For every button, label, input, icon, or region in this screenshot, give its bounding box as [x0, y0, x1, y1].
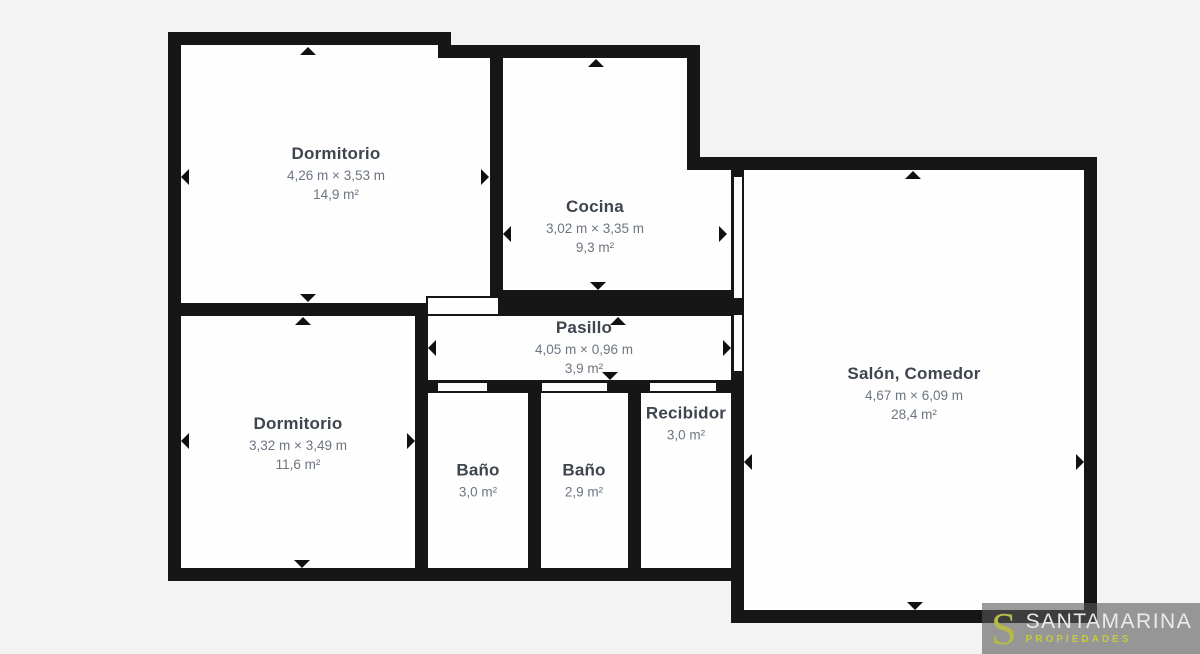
- room-name: Dormitorio: [287, 144, 385, 164]
- measure-arrow-right-icon: [723, 340, 731, 356]
- label-bano-2: Baño 2,9 m²: [562, 461, 605, 500]
- room-name: Recibidor: [646, 404, 726, 424]
- door-dormitorio1-pasillo: [426, 296, 500, 316]
- room-cocina: [503, 58, 687, 290]
- label-dormitorio-2: Dormitorio 3,32 m × 3,49 m 11,6 m²: [249, 414, 347, 472]
- wall-bano1-bano2: [528, 380, 541, 581]
- measure-arrow-down-icon: [907, 602, 923, 610]
- room-dimensions: 4,67 m × 6,09 m: [847, 388, 980, 403]
- measure-arrow-down-icon: [294, 560, 310, 568]
- wall-salon-top: [687, 157, 1097, 170]
- door-pasillo-bano2: [542, 383, 607, 392]
- room-area: 14,9 m²: [287, 187, 385, 202]
- measure-arrow-up-icon: [905, 171, 921, 179]
- room-area: 9,3 m²: [546, 240, 644, 255]
- room-area: 11,6 m²: [249, 457, 347, 472]
- room-area: 3,9 m²: [535, 361, 633, 376]
- label-salon-comedor: Salón, Comedor 4,67 m × 6,09 m 28,4 m²: [847, 364, 980, 422]
- measure-arrow-up-icon: [300, 47, 316, 55]
- door-pasillo-salon: [734, 315, 742, 371]
- measure-arrow-left-icon: [503, 226, 511, 242]
- logo-mark-icon: S: [991, 610, 1017, 648]
- agency-logo: S SANTAMARINA PROPIEDADES: [982, 603, 1200, 654]
- measure-arrow-down-icon: [590, 282, 606, 290]
- label-bano-1: Baño 3,0 m²: [456, 461, 499, 500]
- measure-arrow-right-icon: [1076, 454, 1084, 470]
- room-dimensions: 4,26 m × 3,53 m: [287, 168, 385, 183]
- room-name: Cocina: [546, 197, 644, 217]
- room-name: Salón, Comedor: [847, 364, 980, 384]
- room-dimensions: 4,05 m × 0,96 m: [535, 342, 633, 357]
- door-cocina-salon: [734, 177, 742, 298]
- logo-tagline-text: PROPIEDADES: [1026, 634, 1193, 646]
- room-dimensions: 3,32 m × 3,49 m: [249, 438, 347, 453]
- measure-arrow-right-icon: [481, 169, 489, 185]
- measure-arrow-left-icon: [181, 433, 189, 449]
- room-area: 2,9 m²: [562, 485, 605, 500]
- wall-cocina-right: [687, 45, 700, 170]
- room-area: 3,0 m²: [456, 485, 499, 500]
- label-dormitorio-1: Dormitorio 4,26 m × 3,53 m 14,9 m²: [287, 144, 385, 202]
- label-recibidor: Recibidor 3,0 m²: [646, 404, 726, 443]
- wall-cocina-bottom: [490, 290, 744, 303]
- measure-arrow-left-icon: [428, 340, 436, 356]
- measure-arrow-left-icon: [181, 169, 189, 185]
- measure-arrow-right-icon: [407, 433, 415, 449]
- wall-top-dormitorio1: [168, 32, 451, 45]
- measure-arrow-up-icon: [295, 317, 311, 325]
- measure-arrow-up-icon: [588, 59, 604, 67]
- floor-plan: Dormitorio 4,26 m × 3,53 m 14,9 m² Cocin…: [0, 0, 1200, 654]
- room-name: Baño: [456, 461, 499, 481]
- label-pasillo: Pasillo 4,05 m × 0,96 m 3,9 m²: [535, 318, 633, 376]
- door-pasillo-recibidor: [650, 383, 716, 392]
- logo-brand-text: SANTAMARINA: [1026, 611, 1193, 633]
- wall-salon-right: [1084, 157, 1097, 623]
- label-cocina: Cocina 3,02 m × 3,35 m 9,3 m²: [546, 197, 644, 255]
- room-dimensions: 3,02 m × 3,35 m: [546, 221, 644, 236]
- measure-arrow-right-icon: [719, 226, 727, 242]
- room-name: Baño: [562, 461, 605, 481]
- measure-arrow-left-icon: [744, 454, 752, 470]
- measure-arrow-down-icon: [300, 294, 316, 302]
- room-name: Pasillo: [535, 318, 633, 338]
- room-name: Dormitorio: [249, 414, 347, 434]
- wall-dormitorio1-cocina: [490, 45, 503, 303]
- wall-bano2-recibidor: [628, 380, 641, 581]
- wall-top-cocina: [438, 45, 700, 58]
- room-area: 3,0 m²: [646, 428, 726, 443]
- wall-dormitorio2-right: [415, 303, 428, 581]
- room-area: 28,4 m²: [847, 407, 980, 422]
- door-pasillo-bano1: [438, 383, 487, 392]
- wall-outer-bottom: [168, 568, 744, 581]
